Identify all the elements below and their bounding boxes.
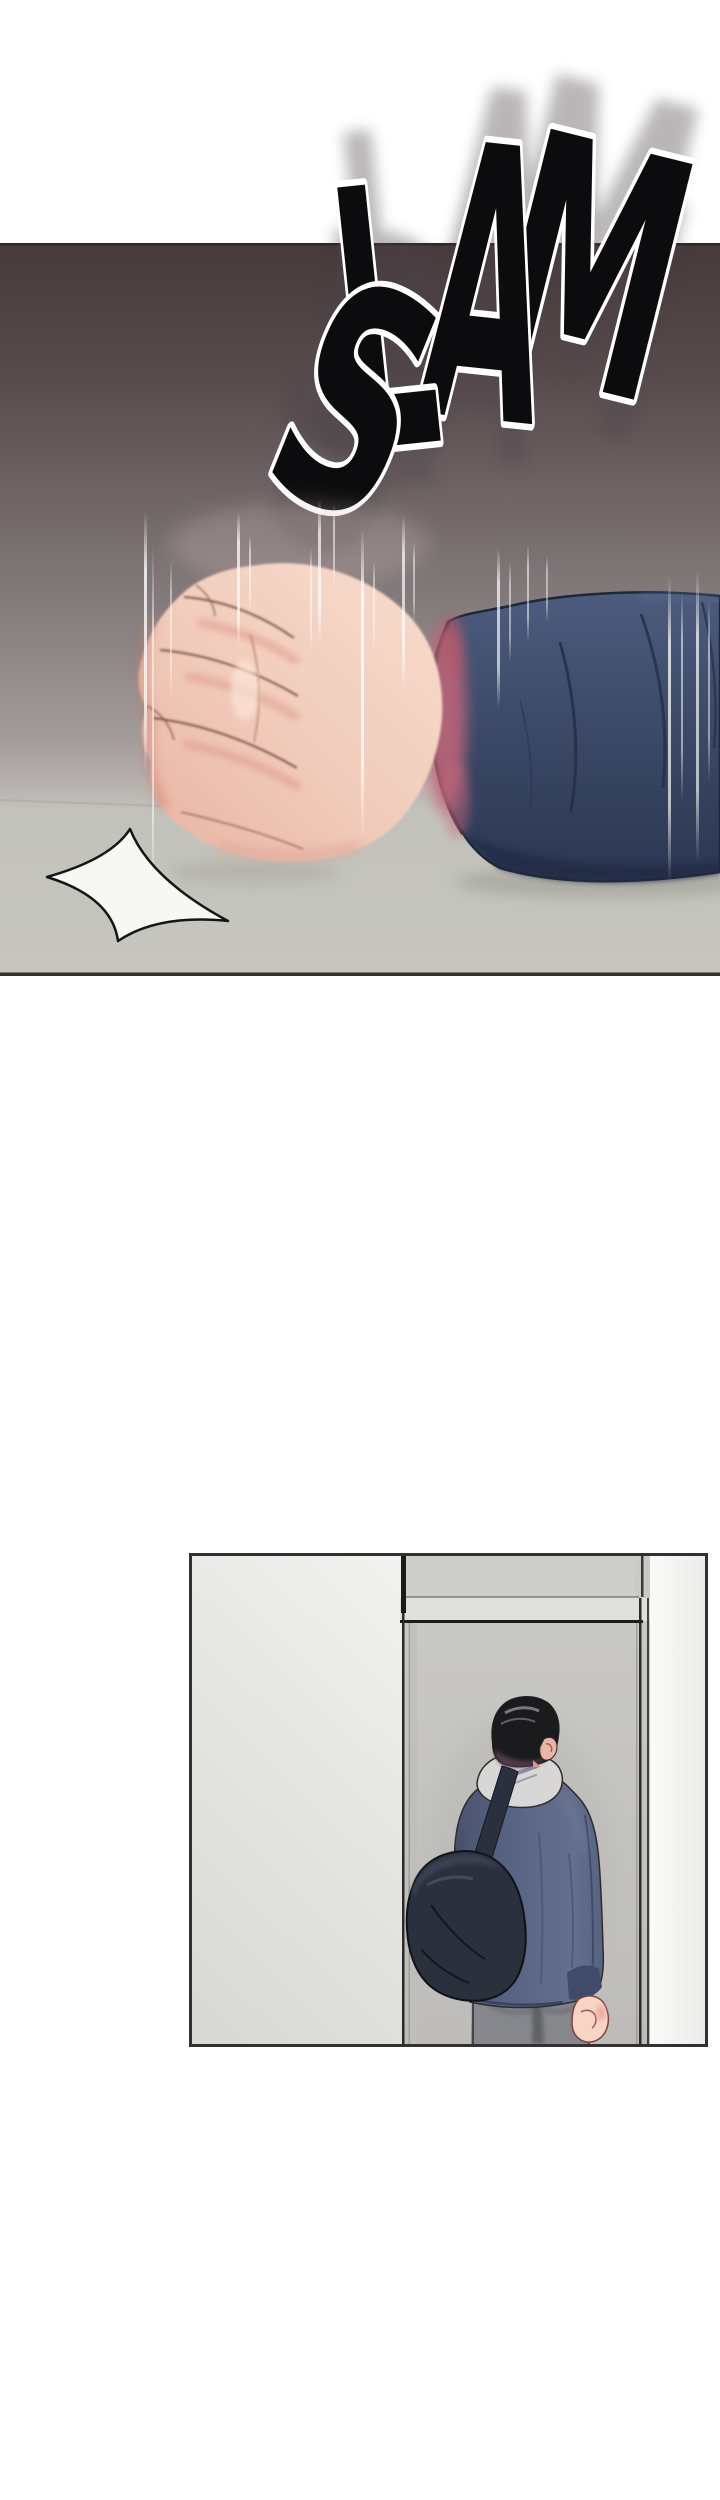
fist xyxy=(139,563,443,861)
frame-right-outer-line xyxy=(647,1598,649,2047)
sleeve-arm xyxy=(429,592,720,882)
fist-desk-shadow xyxy=(170,860,340,884)
finger-highlight xyxy=(231,660,259,720)
hand xyxy=(572,1996,608,2042)
frame-left-thick-top xyxy=(401,1553,406,1613)
frame-right-inner-line xyxy=(636,1623,638,2047)
right-wall xyxy=(650,1553,708,2047)
frame-right-line xyxy=(639,1598,642,2047)
frame-left-inner-line xyxy=(409,1623,411,2047)
door-transom xyxy=(405,1553,635,1597)
lintel-underline xyxy=(400,1620,643,1623)
hand-flush xyxy=(596,2005,606,2021)
webtoon-page: M A L S M A L S M A L S xyxy=(0,0,720,2500)
panel1-bottom-border xyxy=(0,973,720,977)
shoulder-bag xyxy=(407,1851,526,2001)
transom-right-line xyxy=(641,1553,644,1597)
frame-left-line xyxy=(402,1553,405,2047)
door-lintel-band xyxy=(400,1598,650,1621)
panel-impact: M A L S M A L S M A L S xyxy=(0,0,720,976)
head xyxy=(491,1696,559,1768)
panel-doorway xyxy=(189,1553,708,2047)
transom-bottom-line xyxy=(403,1596,639,1598)
door-inner-strip xyxy=(410,1623,417,2047)
